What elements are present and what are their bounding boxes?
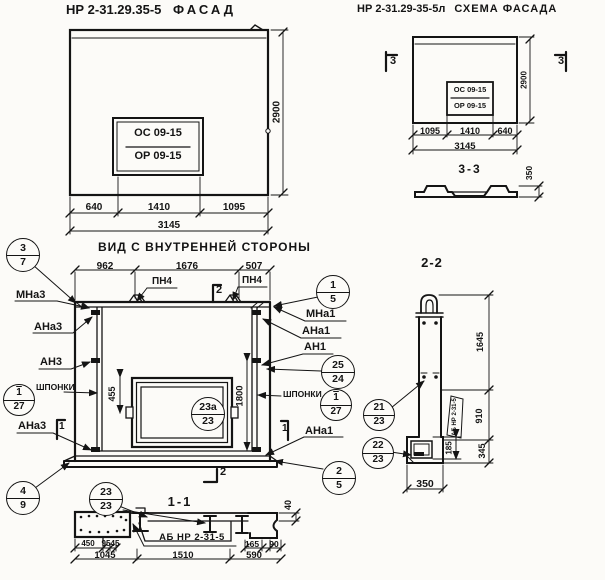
scheme-dim-height: 2900 bbox=[520, 71, 529, 89]
callout-bottom: 27 bbox=[4, 401, 34, 416]
anchor-label-mna1: МНа1 bbox=[306, 308, 335, 320]
beam-label-11: АБ НР 2-31-5 bbox=[159, 532, 225, 543]
callout-bottom: 24 bbox=[322, 373, 354, 389]
s11-dim-165: 165 bbox=[245, 539, 259, 549]
facade-window-mark-bottom: ОР 09-15 bbox=[134, 150, 181, 162]
callout-top: 1 bbox=[4, 385, 34, 401]
beam-label-22: АБ НР 2-31-5 bbox=[452, 398, 458, 436]
section33-profile-linework bbox=[415, 182, 543, 201]
callout-21-23: 21 23 bbox=[363, 399, 395, 431]
section-flag-1-left: 1 bbox=[59, 421, 65, 432]
s11-dim-590: 590 bbox=[246, 550, 262, 561]
callout-bottom: 23 bbox=[90, 500, 122, 516]
scheme-code: НР 2-31.29-35-5л bbox=[357, 3, 445, 15]
facade-dim-1410: 1410 bbox=[148, 202, 170, 213]
drawing-sheet: НР 2-31.29.35-5 ФАСАД НР 2-31.29-35-5л С… bbox=[0, 0, 605, 580]
s22-dim-185: 185 bbox=[445, 441, 454, 454]
facade-code: НР 2-31.29.35-5 bbox=[66, 2, 161, 17]
s11-dim-1510: 1510 bbox=[172, 550, 193, 561]
section22-linework bbox=[403, 291, 493, 493]
callout-top: 2 bbox=[323, 462, 355, 479]
section33-dim-thickness: 350 bbox=[524, 166, 534, 180]
scheme-dim-640: 640 bbox=[497, 126, 512, 136]
loop-label-pn4-1: ПН4 bbox=[152, 276, 172, 287]
callout-top: 1 bbox=[321, 390, 351, 406]
callout-1-27-left: 1 27 bbox=[3, 384, 35, 416]
inner-dim-opening-1800: 1800 bbox=[235, 385, 246, 406]
s11-dim-40: 40 bbox=[283, 500, 293, 510]
keys-label-right: ШПОНКИ bbox=[283, 389, 322, 399]
scheme-dim-1410: 1410 bbox=[460, 126, 480, 136]
scheme-dim-1095: 1095 bbox=[420, 126, 440, 136]
scheme-window-mark-bottom: ОР 09-15 bbox=[454, 101, 486, 110]
s22-dim-910: 910 bbox=[474, 408, 484, 423]
inner-view-title: ВИД С ВНУТРЕННЕЙ СТОРОНЫ bbox=[98, 240, 311, 254]
callout-top: 3 bbox=[7, 239, 39, 256]
inner-dim-507: 507 bbox=[246, 261, 263, 272]
s11-dim-1045: 1045 bbox=[94, 550, 115, 561]
facade-dim-height: 2900 bbox=[272, 101, 283, 123]
section-flag-1-right: 1 bbox=[282, 423, 288, 434]
s11-dim-95: 95 bbox=[102, 539, 111, 548]
inner-dim-962: 962 bbox=[97, 261, 114, 272]
anchor-label-mna3: МНа3 bbox=[16, 289, 45, 301]
section11-title: 1-1 bbox=[168, 494, 193, 509]
inner-annotations-linework bbox=[15, 265, 424, 523]
section-marker-2-bottom: 2 bbox=[220, 466, 226, 478]
facade-dim-total: 3145 bbox=[158, 220, 180, 231]
facade-name: ФАСАД bbox=[173, 2, 236, 17]
callout-bottom: 7 bbox=[7, 256, 39, 272]
callout-top: 23а bbox=[192, 398, 224, 415]
s22-dim-1645: 1645 bbox=[475, 332, 485, 352]
anchor-label-ana1: АНа1 bbox=[302, 325, 330, 337]
callout-25-24: 25 24 bbox=[321, 355, 355, 389]
callout-22-23: 22 23 bbox=[362, 437, 394, 469]
callout-top: 23 bbox=[90, 483, 122, 500]
s11-dim-90: 90 bbox=[269, 539, 278, 549]
callout-3-7: 3 7 bbox=[6, 238, 40, 272]
keys-label-left: ШПОНКИ bbox=[36, 382, 75, 392]
anchor-label-an3: АН3 bbox=[40, 356, 62, 368]
facade-dim-640: 640 bbox=[86, 202, 103, 213]
inner-panel-linework bbox=[64, 295, 277, 467]
facade-panel-linework bbox=[70, 25, 270, 195]
callout-bottom: 5 bbox=[317, 293, 349, 309]
callout-2-5: 2 5 bbox=[322, 461, 356, 495]
facade-title: НР 2-31.29.35-5 ФАСАД bbox=[66, 2, 236, 17]
callout-top: 25 bbox=[322, 356, 354, 373]
scheme-title: НР 2-31.29-35-5л СХЕМА ФАСАДА bbox=[357, 3, 557, 15]
callout-top: 21 bbox=[364, 400, 394, 416]
callout-top: 22 bbox=[363, 438, 393, 454]
callout-4-9: 4 9 bbox=[6, 481, 40, 515]
facade-dim-1095: 1095 bbox=[223, 202, 245, 213]
section-marker-2-top: 2 bbox=[216, 284, 222, 296]
scheme-dims-linework bbox=[409, 35, 534, 154]
callout-bottom: 23 bbox=[364, 416, 394, 431]
inner-dim-window-455: 455 bbox=[107, 386, 117, 401]
callout-1-5: 1 5 bbox=[316, 275, 350, 309]
s11-dim-450: 450 bbox=[81, 539, 94, 548]
callout-1-27-right: 1 27 bbox=[320, 389, 352, 421]
callout-23-23: 23 23 bbox=[89, 482, 123, 516]
anchor-label-an1: АН1 bbox=[304, 341, 326, 353]
section33-title: 3-3 bbox=[458, 162, 481, 176]
anchor-label-ana3: АНа3 bbox=[34, 321, 62, 333]
callout-23a-23: 23а 23 bbox=[191, 397, 225, 431]
s22-dim-350: 350 bbox=[416, 478, 434, 490]
s11-dim-45: 45 bbox=[111, 539, 120, 548]
facade-window-mark-top: ОС 09-15 bbox=[134, 127, 182, 139]
scheme-panel-linework bbox=[386, 37, 566, 123]
s22-dim-345: 345 bbox=[477, 443, 487, 458]
anchor-label-ana1-bottom: АНа1 bbox=[305, 425, 333, 437]
callout-bottom: 23 bbox=[192, 415, 224, 431]
section-marker-3-left: 3 bbox=[390, 55, 396, 67]
section-marker-3-right: 3 bbox=[558, 55, 564, 67]
scheme-name: СХЕМА ФАСАДА bbox=[454, 3, 557, 15]
scheme-window-mark-top: ОС 09-15 bbox=[454, 85, 487, 94]
scheme-dim-total: 3145 bbox=[454, 141, 475, 152]
callout-bottom: 27 bbox=[321, 406, 351, 421]
callout-bottom: 5 bbox=[323, 479, 355, 495]
callout-top: 4 bbox=[7, 482, 39, 499]
loop-label-pn4-2: ПН4 bbox=[242, 275, 262, 286]
callout-bottom: 9 bbox=[7, 499, 39, 515]
inner-dim-1676: 1676 bbox=[176, 261, 198, 272]
section22-title: 2-2 bbox=[421, 255, 443, 270]
anchor-label-ana3-bottom: АНа3 bbox=[18, 420, 46, 432]
callout-top: 1 bbox=[317, 276, 349, 293]
callout-bottom: 23 bbox=[363, 454, 393, 469]
